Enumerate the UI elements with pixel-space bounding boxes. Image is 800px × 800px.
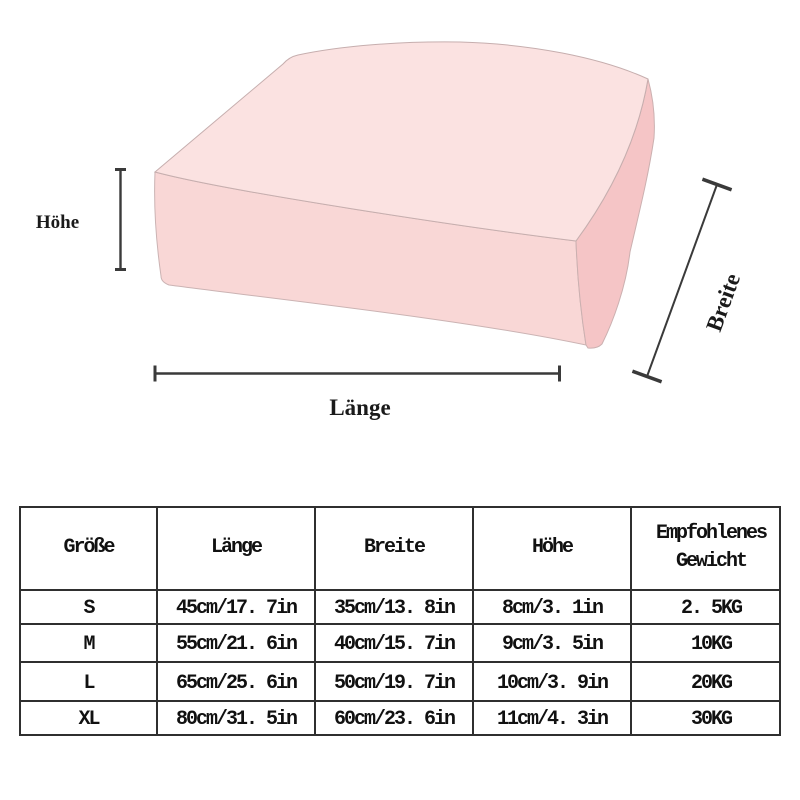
svg-text:Höhe: Höhe: [36, 212, 79, 233]
svg-text:Breite: Breite: [701, 270, 745, 335]
svg-text:Länge: Länge: [329, 395, 390, 420]
